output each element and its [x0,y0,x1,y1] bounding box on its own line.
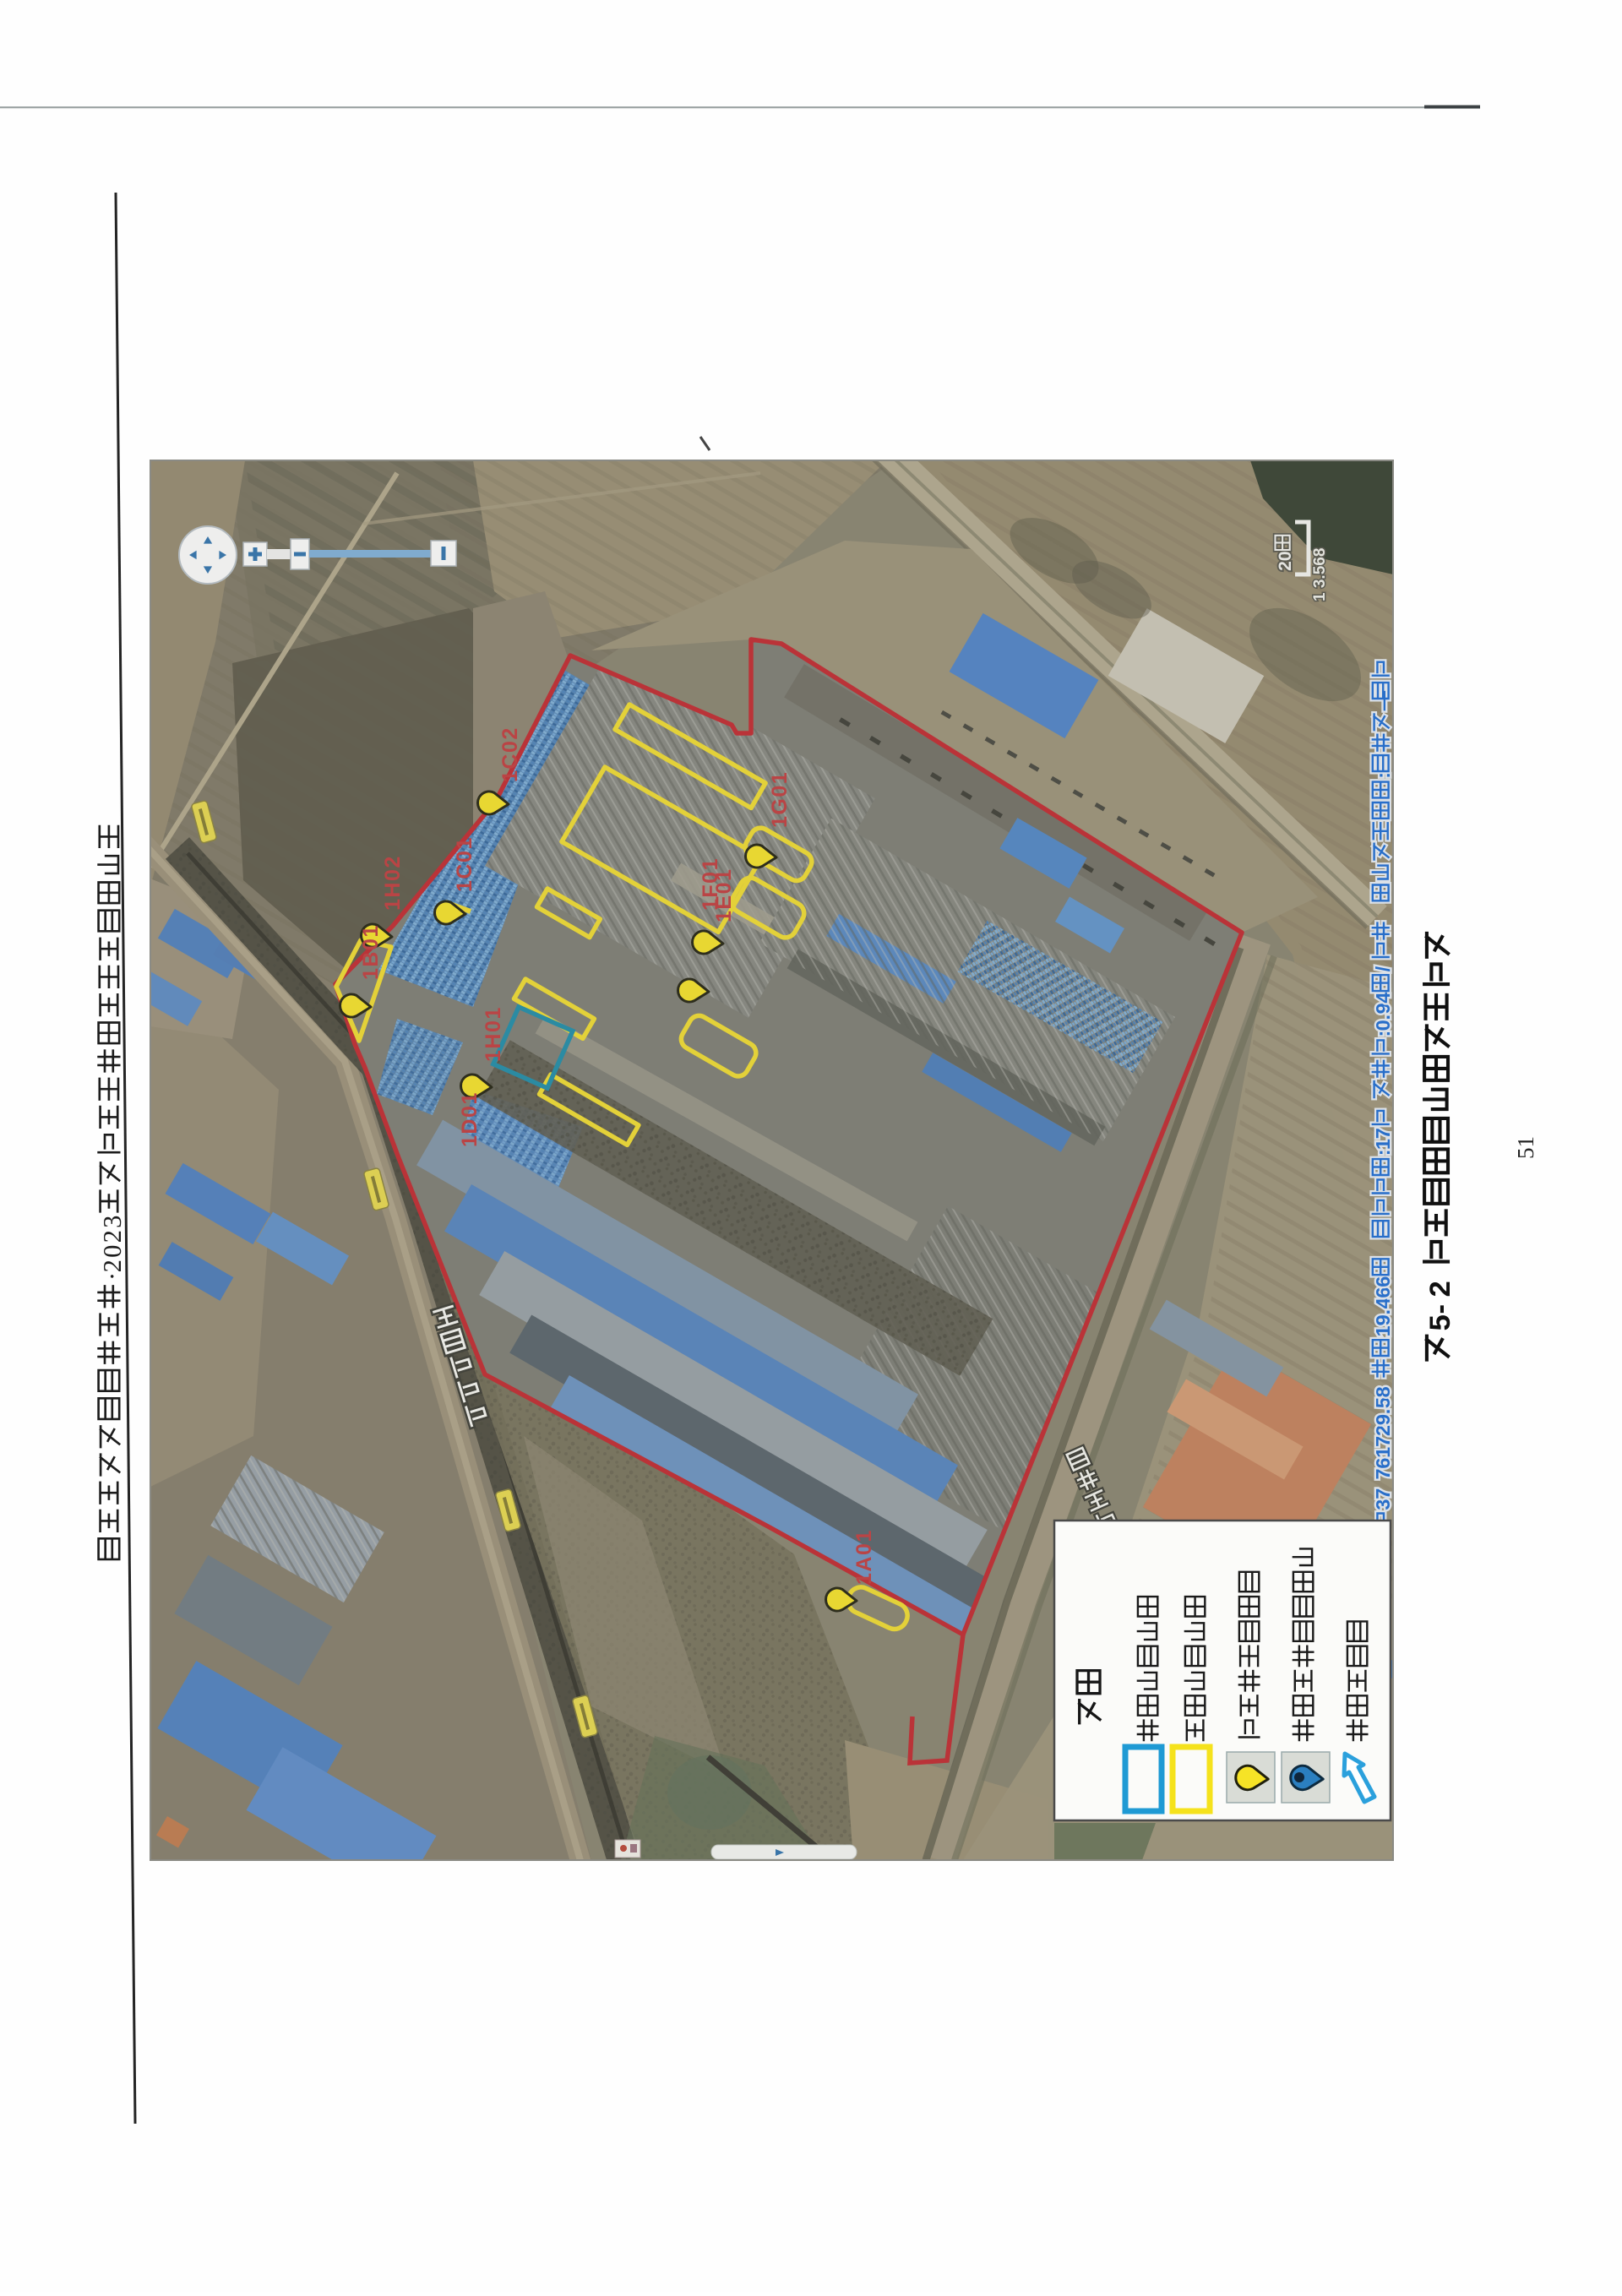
svg-text:2: 2 [1424,1281,1456,1297]
svg-text:5: 5 [1424,1314,1456,1330]
svg-text:51: 51 [1513,1136,1538,1159]
svg-text:0: 0 [98,1245,127,1258]
svg-text:3: 3 [98,1216,127,1228]
svg-text:2: 2 [98,1260,127,1272]
svg-text:2: 2 [98,1230,127,1243]
svg-text:-: - [1424,1304,1456,1314]
